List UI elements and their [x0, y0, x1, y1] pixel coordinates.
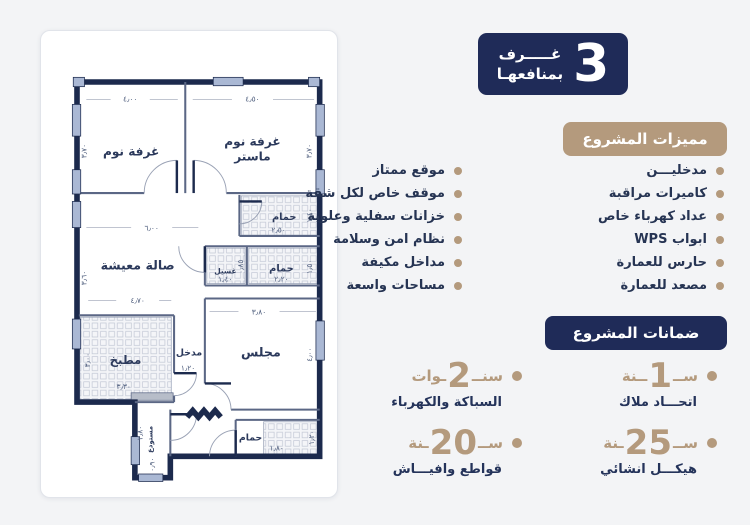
feature-label: مساحات واسعة — [346, 279, 445, 292]
dim-living-h: ٣٫٦٠ — [79, 271, 88, 285]
dim-passage: ٠٫٨٥ — [236, 260, 245, 274]
bullet-icon — [716, 282, 724, 290]
dim-bedroom-w: ٤٫٠٠ — [123, 95, 137, 104]
dim-bedroom-h: ٣٫٧٠ — [79, 144, 88, 158]
feature-label: موقف خاص لكل شقة — [305, 187, 445, 200]
bullet-icon — [454, 213, 462, 221]
dim-kitchen-w: ٣٫٣٠ — [116, 382, 130, 391]
feature-item: مصعد للعمارة — [620, 279, 724, 292]
bullet-icon — [454, 167, 462, 175]
dim-majlis-w: ٣٫٨٠ — [252, 307, 266, 316]
room-label-entry: مدخل — [176, 347, 202, 358]
guarantee-label: قواطع وافيـــاش — [393, 462, 502, 477]
dim-master-h: ٣٫٧٠ — [304, 144, 313, 158]
bullet-icon — [454, 259, 462, 267]
feature-item: مداخل مكيفة — [361, 256, 462, 269]
room-label-bath1: حمام — [272, 212, 297, 223]
dim-bath1-w: ٢٫٥٠ — [271, 225, 285, 234]
bullet-icon — [454, 282, 462, 290]
dim-living-w: ٦٫٠٠ — [144, 223, 158, 232]
dim-majlis-h: ٤٫٠٠ — [305, 347, 314, 361]
guarantee-suffix: ـنة — [408, 436, 428, 451]
rooms-badge-line1: غـــــرف — [497, 44, 563, 64]
feature-item: مدخليـــن — [646, 164, 724, 177]
rooms-count-number: 3 — [573, 35, 609, 93]
guarantee-suffix: ــنة — [622, 369, 647, 384]
room-label-living: صالة معيشة — [101, 258, 175, 273]
feature-item: عداد كهرباء خاص — [598, 210, 724, 223]
room-label-storage: مستودع — [147, 426, 155, 453]
guarantee-item: ســ1ــنة اتحـــاد ملاك — [619, 360, 717, 410]
guarantee-number: 20 — [430, 427, 477, 459]
bullet-icon — [707, 371, 717, 381]
guarantee-prefix: ســ — [673, 436, 698, 451]
zigzag-symbol — [187, 411, 221, 418]
guarantee-number: 25 — [625, 427, 672, 459]
dim-corridor-w: ٠٫٩٠ — [147, 457, 156, 471]
floor-plan-card: غرفة نوم غرفة نوم ماستر صالة معيشة حمام … — [40, 30, 338, 498]
feature-item: مساحات واسعة — [346, 279, 462, 292]
guarantee-item: سنــ2ـوات السباكة والكهرباء — [391, 360, 522, 410]
kitchen-counter — [131, 393, 173, 400]
guarantees-column-left: سنــ2ـوات السباكة والكهرباء ســ20ـنة قوا… — [391, 360, 522, 477]
bullet-icon — [454, 190, 462, 198]
features-column-right: مدخليـــن كاميرات مراقبة عداد كهرباء خاص… — [598, 164, 724, 292]
guarantee-number: 2 — [447, 360, 471, 392]
bullet-icon — [707, 438, 717, 448]
feature-item: ابواب WPS — [634, 233, 724, 246]
features-header: مميزات المشروع — [563, 122, 727, 156]
feature-label: مداخل مكيفة — [361, 256, 445, 269]
feature-label: خزانات سفلية وعلوية — [307, 210, 445, 223]
guarantee-label: اتحـــاد ملاك — [619, 395, 697, 410]
room-label-master-1: غرفة نوم — [224, 134, 280, 149]
dim-bath2-w: ٢٫٢٠ — [274, 275, 288, 284]
room-label-bath2: حمام — [269, 263, 294, 274]
feature-item: نظام امن وسلامة — [333, 233, 462, 246]
feature-item: خزانات سفلية وعلوية — [307, 210, 462, 223]
guarantee-suffix: ـوات — [411, 369, 446, 384]
bullet-icon — [512, 371, 522, 381]
guarantee-suffix: ـنة — [603, 436, 623, 451]
feature-label: ابواب WPS — [634, 233, 707, 246]
dim-bath3-w: ١٫٨٠ — [270, 444, 284, 453]
bullet-icon — [716, 259, 724, 267]
guarantee-prefix: ســ — [673, 369, 698, 384]
feature-label: حارس للعمارة — [617, 256, 707, 269]
feature-label: مدخليـــن — [646, 164, 707, 177]
room-label-majlis: مجلس — [241, 344, 281, 359]
guarantee-label: هيكـــل انشائي — [600, 462, 697, 477]
guarantees-header: ضمانات المشروع — [545, 316, 727, 350]
guarantee-prefix: ســ — [478, 436, 503, 451]
feature-label: كاميرات مراقبة — [609, 187, 707, 200]
guarantee-prefix: سنــ — [472, 369, 503, 384]
rooms-badge-line2: بمنافعهـا — [497, 64, 563, 84]
dim-kitchen-top: ٤٫٧٠ — [130, 296, 144, 305]
feature-label: موقع ممتاز — [372, 164, 445, 177]
guarantee-item: ســ20ـنة قواطع وافيـــاش — [393, 427, 522, 477]
dim-corridor-h: ٢٫٨٠ — [135, 426, 144, 440]
feature-label: عداد كهرباء خاص — [598, 210, 707, 223]
feature-label: مصعد للعمارة — [620, 279, 707, 292]
guarantees-column-right: ســ1ــنة اتحـــاد ملاك ســ25ـنة هيكـــل … — [600, 360, 717, 477]
features-column-left: موقع ممتاز موقف خاص لكل شقة خزانات سفلية… — [305, 164, 462, 292]
room-label-kitchen: مطبخ — [110, 353, 142, 368]
room-labels: غرفة نوم غرفة نوم ماستر صالة معيشة حمام … — [101, 134, 297, 453]
dim-kitchen-h: ٣٫٠٠ — [83, 353, 92, 367]
feature-label: نظام امن وسلامة — [333, 233, 445, 246]
feature-item: موقف خاص لكل شقة — [305, 187, 462, 200]
bullet-icon — [512, 438, 522, 448]
room-label-bath3: حمام — [239, 432, 262, 443]
feature-item: كاميرات مراقبة — [609, 187, 724, 200]
feature-item: موقع ممتاز — [372, 164, 462, 177]
floor-plan: غرفة نوم غرفة نوم ماستر صالة معيشة حمام … — [49, 37, 329, 491]
room-label-master-2: ماستر — [233, 149, 270, 163]
guarantee-item: ســ25ـنة هيكـــل انشائي — [600, 427, 717, 477]
bullet-icon — [454, 236, 462, 244]
guarantee-label: السباكة والكهرباء — [391, 395, 502, 410]
bullet-icon — [716, 236, 724, 244]
bullet-icon — [716, 167, 724, 175]
feature-item: حارس للعمارة — [617, 256, 724, 269]
dim-entry-w: ١٫٢٠ — [181, 363, 195, 372]
dim-laundry-w: ١٫٤٠ — [218, 275, 232, 284]
rooms-count-badge: 3 غـــــرف بمنافعهـا — [478, 33, 628, 95]
guarantee-number: 1 — [648, 360, 672, 392]
room-label-bedroom: غرفة نوم — [103, 145, 159, 160]
bullet-icon — [716, 213, 724, 221]
dim-master-w: ٤٫٥٠ — [245, 95, 259, 104]
bullet-icon — [716, 190, 724, 198]
dim-bath3-h: ١٫٢٠ — [307, 430, 316, 444]
